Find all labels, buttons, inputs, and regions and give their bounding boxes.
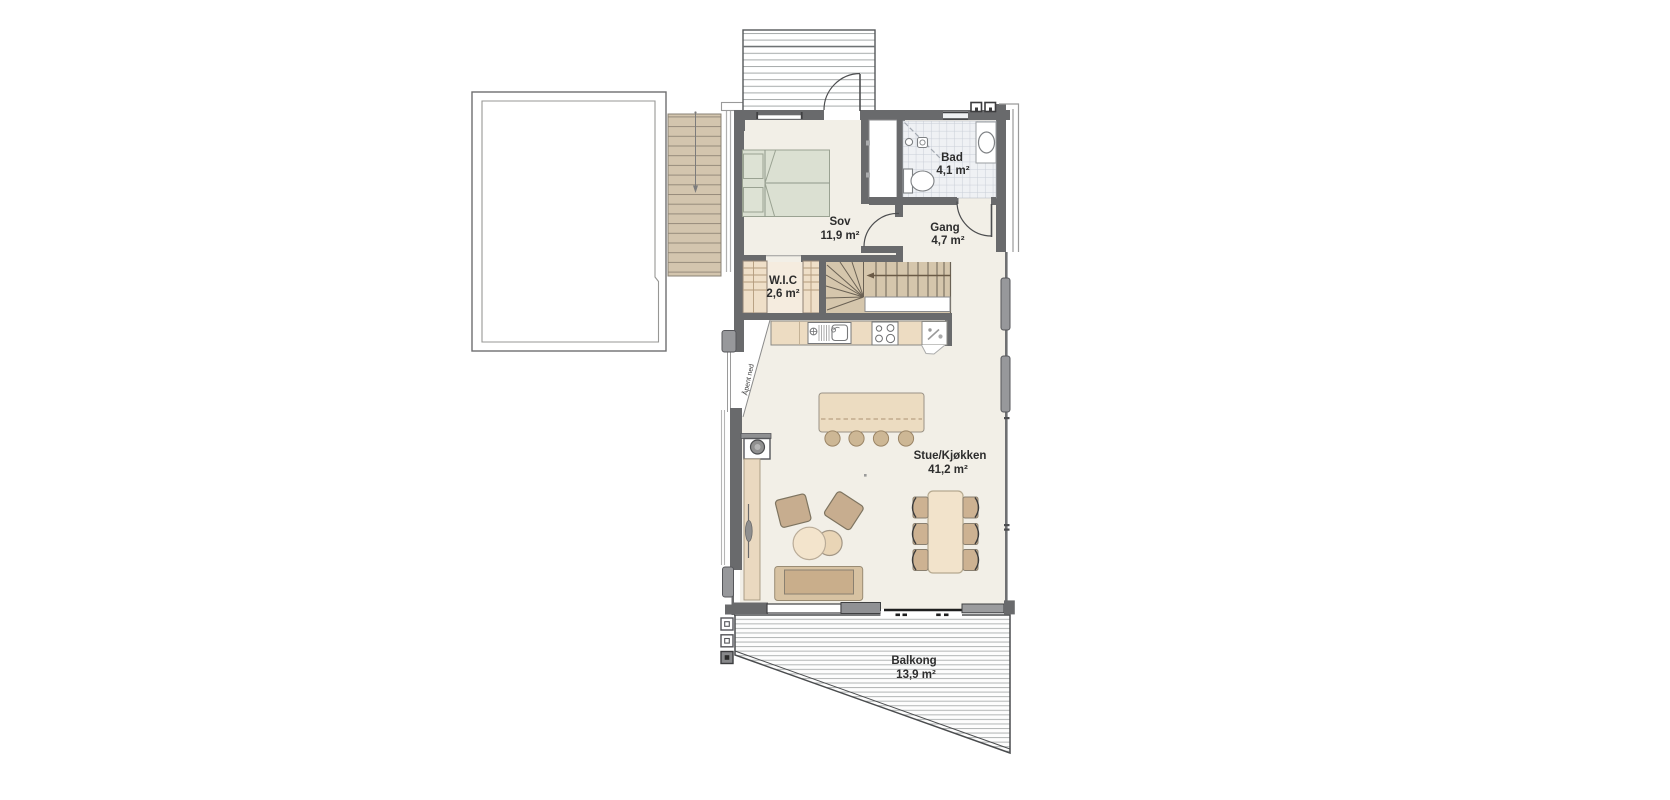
svg-text:Stue/Kjøkken: Stue/Kjøkken — [914, 450, 987, 462]
svg-text:41,2 m²: 41,2 m² — [928, 464, 968, 476]
svg-text:Gang: Gang — [930, 222, 959, 234]
svg-text:W.I.C: W.I.C — [769, 275, 797, 287]
svg-text:4,1 m²: 4,1 m² — [936, 165, 969, 177]
svg-text:2,6 m²: 2,6 m² — [766, 288, 799, 300]
svg-text:Balkong: Balkong — [891, 655, 936, 667]
svg-text:4,7 m²: 4,7 m² — [931, 235, 964, 247]
svg-text:Sov: Sov — [829, 216, 851, 228]
svg-text:13,9 m²: 13,9 m² — [896, 669, 936, 681]
svg-text:Bad: Bad — [941, 152, 963, 164]
svg-text:11,9 m²: 11,9 m² — [821, 230, 860, 242]
